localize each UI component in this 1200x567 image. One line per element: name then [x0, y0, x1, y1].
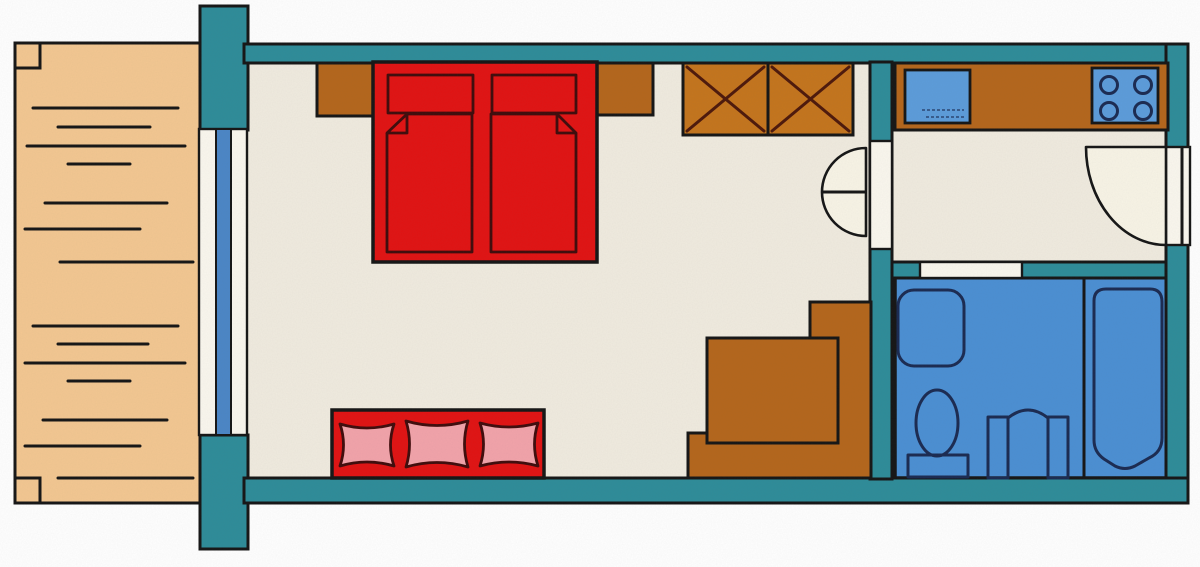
- floor-plan-drawing: [0, 0, 1200, 567]
- paper-grain-overlay: [0, 0, 1200, 567]
- floor-plan-canvas: [0, 0, 1200, 567]
